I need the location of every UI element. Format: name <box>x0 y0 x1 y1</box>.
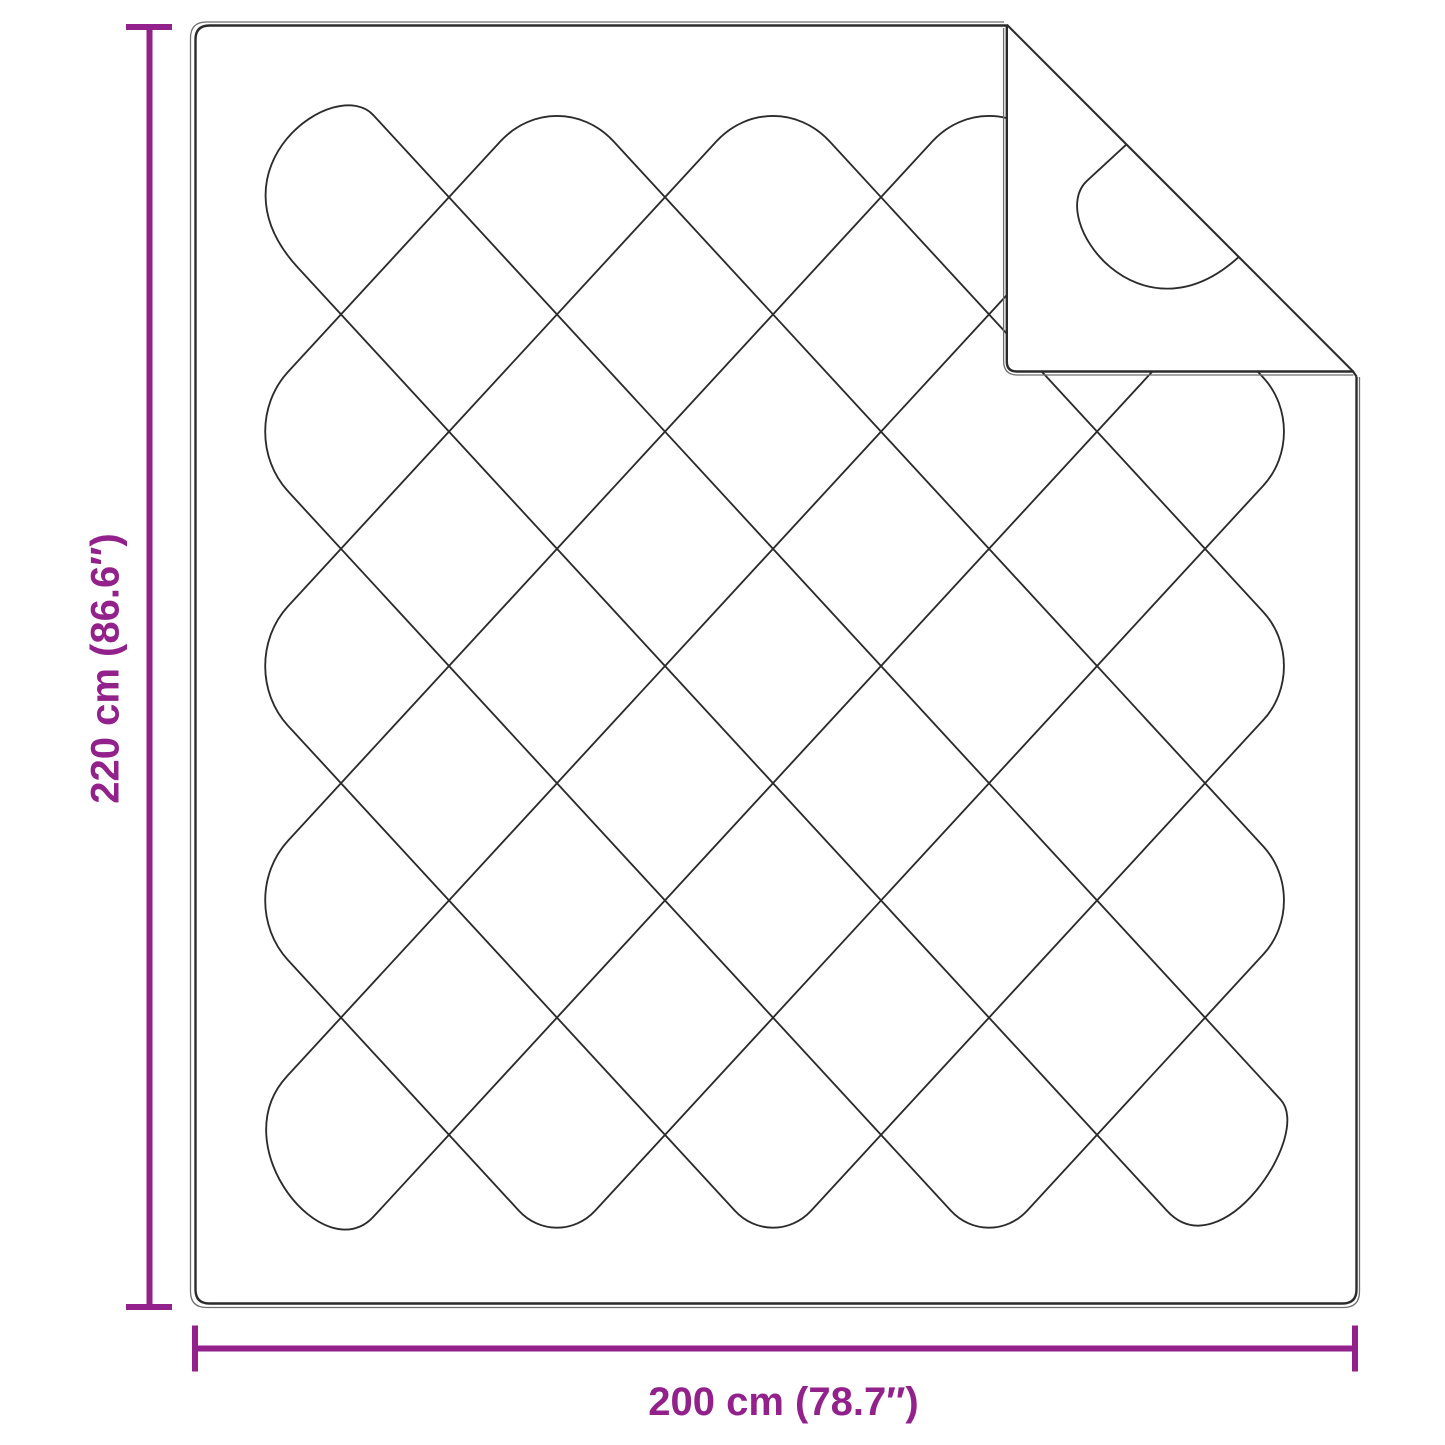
svg-text:220 cm (86.6″): 220 cm (86.6″) <box>84 533 128 803</box>
svg-text:200 cm (78.7″): 200 cm (78.7″) <box>648 1380 918 1424</box>
